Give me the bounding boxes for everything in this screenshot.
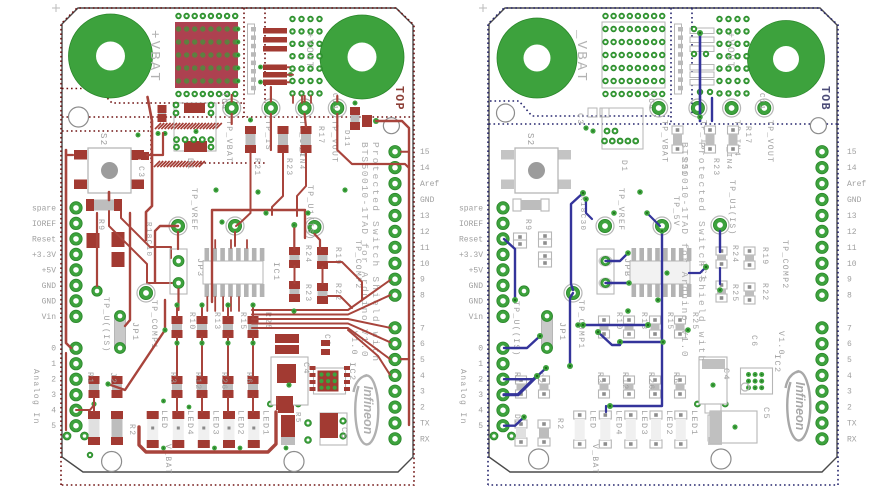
svg-text:IC2: IC2 [772,354,782,374]
svg-text:R12: R12 [193,372,202,391]
svg-text:9: 9 [847,276,852,285]
svg-text:TP_VOUT: TP_VOUT [765,120,774,163]
svg-text:Protected Switch Shield with: Protected Switch Shield with [370,142,381,363]
svg-text:R1: R1 [85,372,94,384]
svg-text:R25: R25 [730,284,739,303]
svg-text:R13: R13 [212,312,221,331]
svg-text:TP_COMP2: TP_COMP2 [780,240,789,290]
svg-text:R24: R24 [730,245,739,264]
svg-text:10: 10 [847,260,857,269]
svg-text:1: 1 [478,360,483,369]
svg-text:5: 5 [420,356,425,365]
svg-text:TP_U((IS): TP_U((IS) [101,297,110,353]
svg-text:C11: C11 [757,93,765,111]
svg-text:LED2: LED2 [236,410,246,436]
svg-text:D1: D1 [185,158,194,170]
svg-text:+5V: +5V [469,266,484,275]
svg-text:TX: TX [420,420,430,429]
svg-text:S2: S2 [525,133,535,147]
svg-text:R10: R10 [614,312,623,331]
svg-text:Vin: Vin [42,313,57,322]
svg-text:13: 13 [420,212,430,221]
svg-text:V_BAT: V_BAT [590,444,599,475]
svg-text:11: 11 [847,244,857,253]
svg-text:8: 8 [847,292,852,301]
svg-text:+3.3V: +3.3V [32,251,56,260]
svg-text:BTS50010-1TAD for Arduino V1.0: BTS50010-1TAD for Arduino V1.0 [359,142,370,358]
svg-text:S2: S2 [98,133,108,147]
svg-text:TOP: TOP [392,86,405,111]
svg-text:2: 2 [51,376,56,385]
svg-text:4: 4 [420,372,425,381]
svg-text:spare: spare [459,204,483,213]
svg-text:12: 12 [420,228,430,237]
svg-text:R15: R15 [238,312,247,331]
svg-text:15: 15 [847,148,857,157]
svg-text:0: 0 [51,345,56,354]
svg-text:RX: RX [420,435,430,444]
svg-text:TP_5V: TP_5V [671,196,680,227]
svg-text:7: 7 [420,324,425,333]
svg-text:R23: R23 [303,284,312,303]
svg-text:0: 0 [478,345,483,354]
svg-text:3: 3 [51,391,56,400]
svg-text:C4: C4 [721,368,731,381]
svg-text:8: 8 [420,292,425,301]
svg-text:LED4: LED4 [613,410,623,436]
svg-text:Reset: Reset [459,235,483,244]
svg-text:R6: R6 [671,372,680,384]
svg-text:3: 3 [847,388,852,397]
svg-text:LED3: LED3 [639,410,649,436]
svg-text:R22: R22 [333,283,342,302]
svg-text:+VOUT: +VOUT [303,32,314,69]
svg-text:C5: C5 [761,407,771,420]
svg-text:C6: C6 [749,335,758,347]
svg-text:Reset: Reset [32,235,56,244]
svg-text:+VOUT: +VOUT [724,32,735,69]
svg-text:Aref: Aref [420,180,439,189]
svg-text:GND: GND [847,196,862,205]
svg-text:R21: R21 [252,158,261,177]
svg-text:R10: R10 [187,312,196,331]
svg-text:Aref: Aref [847,180,866,189]
svg-text:TP_VREF: TP_VREF [189,188,198,231]
svg-text:RX: RX [847,435,857,444]
svg-text:TP_VBAT: TP_VBAT [224,120,233,163]
svg-text:Analog In: Analog In [458,369,467,425]
svg-text:2: 2 [420,404,425,413]
svg-text:R22: R22 [760,283,769,302]
svg-text:R13: R13 [639,312,648,331]
svg-text:JP1: JP1 [557,322,567,342]
svg-text:V1.0: V1.0 [776,331,785,356]
svg-text:4: 4 [847,372,852,381]
svg-text:GND: GND [42,297,57,306]
svg-text:Vin: Vin [469,313,484,322]
svg-text:TP_VBAT: TP_VBAT [660,120,669,163]
svg-text:R19: R19 [760,247,769,266]
svg-text:6: 6 [420,340,425,349]
svg-text:IC2: IC2 [347,362,357,382]
svg-text:12: 12 [847,228,857,237]
svg-text:2: 2 [847,404,852,413]
svg-text:LED2: LED2 [664,410,674,436]
svg-text:C5: C5 [339,427,349,440]
svg-text:R17: R17 [743,126,752,145]
svg-text:10: 10 [420,260,430,269]
svg-text:1: 1 [51,360,56,369]
svg-text:JP1: JP1 [130,322,140,342]
svg-text:IC1: IC1 [271,262,281,282]
svg-text:R3: R3 [168,372,177,384]
svg-text:R23: R23 [284,158,293,177]
svg-text:TOB: TOB [818,86,831,111]
svg-text:R2: R2 [555,418,564,430]
svg-text:5: 5 [847,356,852,365]
svg-text:+5V: +5V [42,266,57,275]
svg-text:_VBAT: _VBAT [573,29,589,83]
svg-text:4: 4 [478,407,483,416]
svg-text:5: 5 [51,422,56,431]
svg-text:R9: R9 [523,219,532,231]
svg-text:6: 6 [847,340,852,349]
svg-text:Infineon: Infineon [793,382,807,431]
svg-text:3: 3 [478,391,483,400]
svg-text:R15: R15 [665,312,674,331]
svg-text:5: 5 [478,422,483,431]
svg-text:D11: D11 [342,130,350,148]
svg-text:2: 2 [478,376,483,385]
svg-text:LED3: LED3 [210,410,220,436]
svg-text:R12: R12 [620,372,629,391]
svg-text:_IN4: _IN4 [724,146,732,171]
svg-text:D1: D1 [619,160,628,172]
svg-text:R5: R5 [293,412,301,424]
svg-text:R6: R6 [244,372,253,384]
svg-text:R2: R2 [127,424,136,436]
svg-text:LED: LED [588,410,598,430]
svg-text:GND: GND [469,282,484,291]
svg-text:R17: R17 [316,126,325,145]
svg-text:GND: GND [469,297,484,306]
svg-text:Infineon: Infineon [361,386,375,435]
svg-text:_IN4: _IN4 [297,146,305,171]
svg-text:IOREF: IOREF [459,220,483,229]
svg-text:TX: TX [847,420,857,429]
svg-text:3: 3 [420,388,425,397]
svg-text:13: 13 [847,212,857,221]
svg-text:Analog In: Analog In [31,369,40,425]
svg-text:R23: R23 [711,158,720,177]
svg-text:LED1: LED1 [260,410,270,436]
svg-text:BTS50010-1TAD for Arduino V1.0: BTS50010-1TAD for Arduino V1.0 [679,142,690,358]
svg-text:TP_U1(IS): TP_U1(IS) [727,180,736,236]
svg-text:TP_VREF: TP_VREF [616,188,625,231]
svg-text:LED1: LED1 [689,410,699,436]
svg-text:+VBAT: +VBAT [146,30,162,83]
svg-text:14: 14 [420,164,430,173]
svg-text:11: 11 [420,244,430,253]
svg-text:LED4: LED4 [185,410,195,436]
svg-text:C3: C3 [575,113,584,125]
svg-text:GND: GND [42,282,57,291]
svg-text:spare: spare [32,204,56,213]
svg-text:7: 7 [847,324,852,333]
svg-text:9: 9 [420,276,425,285]
svg-text:4: 4 [51,407,56,416]
svg-text:IOREF: IOREF [32,220,56,229]
svg-text:LED: LED [159,410,169,430]
svg-text:GND: GND [420,196,435,205]
svg-text:C3: C3 [136,166,145,178]
svg-text:R26: R26 [646,372,655,391]
svg-text:15: 15 [420,148,430,157]
svg-text:Protected Switch Shield with: Protected Switch Shield with [696,142,707,363]
svg-text:R24: R24 [303,245,312,264]
svg-text:R26: R26 [219,372,228,391]
svg-text:14: 14 [847,164,857,173]
svg-text:+3.3V: +3.3V [459,251,483,260]
svg-text:R3: R3 [595,372,604,384]
